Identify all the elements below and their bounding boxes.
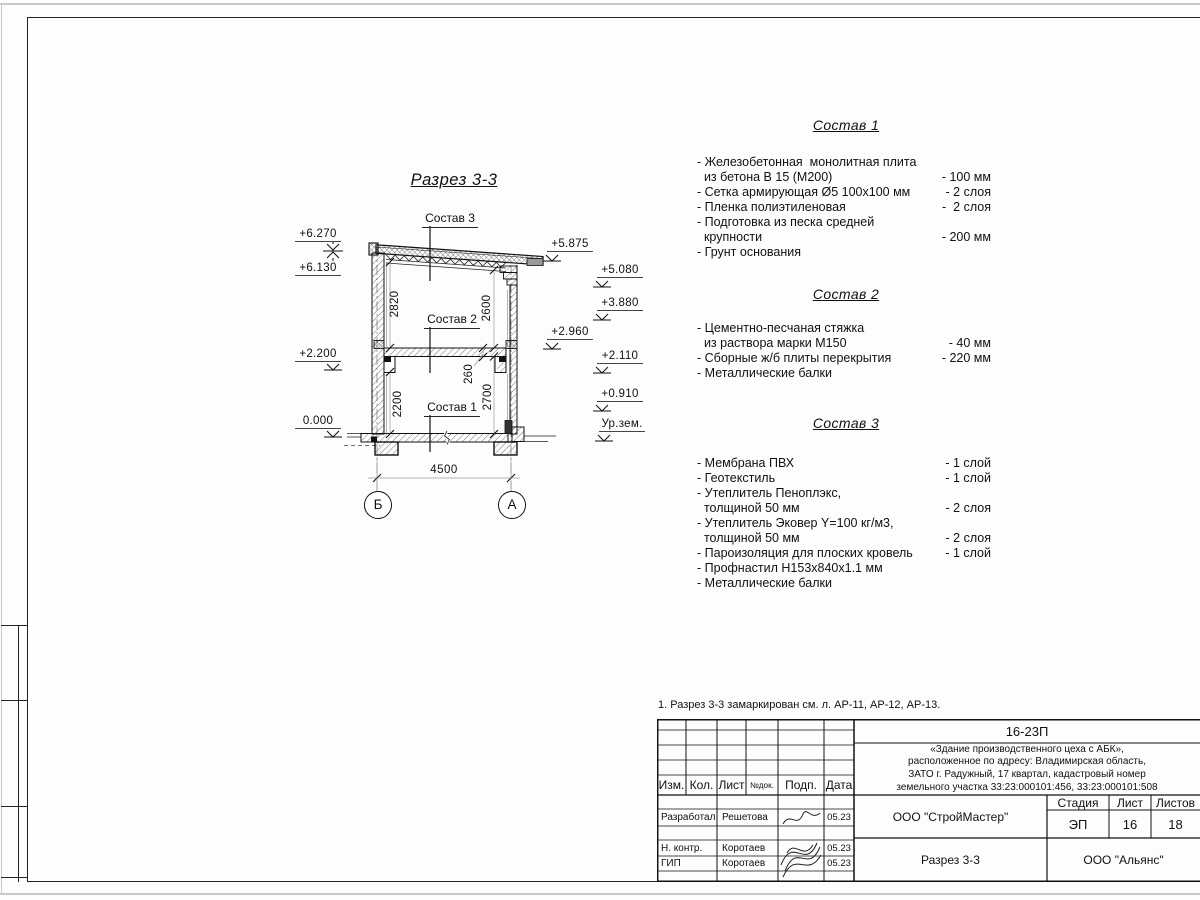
frame-left	[27, 17, 28, 882]
bearing-pad-right	[499, 357, 506, 363]
spec3-rows: - Мембрана ПВХ - 1 слой - Геотекстиль - …	[697, 456, 995, 591]
elevation-0910: +0.910	[597, 388, 643, 402]
sostav2-label: Состав 2	[424, 312, 480, 329]
spec2-title: Состав 2	[697, 286, 995, 302]
spec-row: - Металлические балки	[697, 366, 995, 381]
spec-item-value: - 2 слоя	[946, 531, 995, 546]
spec-item-text: - Мембрана ПВХ	[697, 456, 794, 471]
ground-slab	[361, 434, 508, 443]
grid-bubble-b: Б	[364, 491, 392, 519]
project-description-line: ЗАТО г. Радужный, 17 квартал, кадастровы…	[908, 769, 1146, 782]
col-izm: Изм.	[657, 775, 686, 795]
spec-item-text: - Грунт основания	[697, 245, 801, 260]
elevation-2200: +2.200	[295, 348, 341, 362]
elevation-5875: +5.875	[547, 238, 593, 252]
spec-item-value: - 100 мм	[942, 170, 995, 185]
sheet-edge-top	[0, 3, 1200, 5]
footing-left	[375, 442, 398, 455]
sheet-edge-left	[1, 3, 2, 895]
corbel-step	[504, 273, 518, 280]
project-code: 16-23П	[854, 720, 1200, 742]
col-podp: Подп.	[778, 775, 824, 795]
sheets-total: 18	[1151, 810, 1200, 838]
dim-2200: 2200	[392, 382, 406, 426]
spec-item-value	[991, 561, 995, 576]
spec-row: из бетона В 15 (М200) - 100 мм	[697, 170, 995, 185]
project-description-line: земельного участка 33:23:000101:456, 33:…	[896, 782, 1157, 795]
spec-item-value: - 2 слоя	[946, 501, 995, 516]
spec-row: - Утеплитель Эковер Y=100 кг/м3,	[697, 516, 995, 531]
corbel-step	[507, 279, 517, 285]
spec-row: - Подготовка из песка средней	[697, 215, 995, 230]
spec-item-text: - Утеплитель Эковер Y=100 кг/м3,	[697, 516, 893, 531]
project-description-line: расположенное по адресу: Владимирская об…	[908, 756, 1146, 769]
role-date: 05.23	[824, 856, 854, 871]
spec-item-value: - 1 слой	[945, 471, 995, 486]
stage-label: Стадия	[1047, 795, 1109, 810]
customer-name: ООО "Альянс"	[1047, 838, 1200, 882]
sheet-note: 1. Разрез 3-3 замаркирован см. л. АР-11,…	[658, 699, 940, 711]
dim-2600: 2600	[481, 286, 495, 330]
spec-item-text: - Подготовка из песка средней	[697, 215, 874, 230]
spec-item-value	[991, 516, 995, 531]
col-ndok: №док.	[746, 775, 778, 795]
title-block: 16-23П «Здание производственного цеха с …	[657, 719, 1200, 882]
margin-stamp-line	[1, 625, 27, 626]
dim-2700: 2700	[482, 375, 496, 419]
sheet-label: Лист	[1109, 795, 1151, 810]
org-name: ООО "СтройМастер"	[854, 795, 1047, 838]
spec2-rows: - Цементно-песчаная стяжка из раствора м…	[697, 321, 995, 381]
spec-row: - Мембрана ПВХ - 1 слой	[697, 456, 995, 471]
spec-row: крупности - 200 мм	[697, 230, 995, 245]
spec-item-value: - 220 мм	[942, 351, 995, 366]
spec-item-value: - 1 слой	[945, 546, 995, 561]
spec-row: - Профнастил Н153х840х1.1 мм	[697, 561, 995, 576]
spec-row: - Пленка полиэтиленовая - 2 слоя	[697, 200, 995, 215]
spec-row: - Утеплитель Пеноплэкс,	[697, 486, 995, 501]
spec-item-text: - Цементно-песчаная стяжка	[697, 321, 864, 336]
roof-overhang-tip	[527, 259, 543, 266]
spec-item-text: - Пленка полиэтиленовая	[697, 200, 846, 215]
footing-right	[494, 442, 517, 455]
elevation-2960: +2.960	[547, 326, 593, 340]
spec-item-text: - Пароизоляция для плоских кровель	[697, 546, 913, 561]
slab-wall-junction-left	[374, 341, 384, 349]
elevation-5080: +5.080	[597, 264, 643, 278]
col-kol: Кол.	[686, 775, 717, 795]
section-drawing	[280, 150, 680, 540]
spec-row: - Цементно-песчаная стяжка	[697, 321, 995, 336]
col-data: Дата	[824, 775, 854, 795]
bearing-pad-left	[384, 357, 391, 363]
spec-item-text: - Геотекстиль	[697, 471, 775, 486]
spec-row: - Сетка армирующая Ø5 100х100 мм - 2 сло…	[697, 185, 995, 200]
floor-slab	[384, 348, 506, 357]
spec-item-value	[991, 366, 995, 381]
slab-support-hatch	[497, 363, 506, 373]
drawing-sheet: Разрез 3-3 Состав 3 Состав 2 Состав 1 28…	[0, 0, 1200, 900]
project-description-line: «Здание производственного цеха с АБК»,	[930, 744, 1124, 757]
spec-row: - Сборные ж/б плиты перекрытия - 220 мм	[697, 351, 995, 366]
spec1-title: Состав 1	[697, 117, 995, 133]
col-list: Лист	[717, 775, 746, 795]
elevation-3880: +3.880	[597, 297, 643, 311]
spec3-title: Состав 3	[697, 415, 995, 431]
role-date: 05.23	[824, 809, 854, 826]
spec-item-text: толщиной 50 мм	[697, 531, 800, 546]
spec-row: - Геотекстиль - 1 слой	[697, 471, 995, 486]
spec-item-value	[991, 215, 995, 230]
spec-item-value: - 2 слоя	[942, 200, 995, 215]
role-label: Разработал	[658, 809, 719, 826]
stoop-step	[512, 427, 524, 442]
stage-value: ЭП	[1047, 810, 1109, 838]
spec-item-value: - 200 мм	[942, 230, 995, 245]
spec-item-text: толщиной 50 мм	[697, 501, 800, 516]
elevation-6130: +6.130	[295, 262, 341, 276]
frame-top	[27, 17, 1200, 18]
spec-item-value: - 1 слой	[945, 456, 995, 471]
sostav3-label: Состав 3	[422, 211, 478, 228]
role-name: Коротаев	[719, 840, 780, 856]
spec-row: - Железобетонная монолитная плита	[697, 155, 995, 170]
spec-item-text: - Сборные ж/б плиты перекрытия	[697, 351, 891, 366]
role-label: Н. контр.	[658, 840, 719, 856]
grid-bubble-a: А	[498, 491, 526, 519]
spec-item-value	[991, 245, 995, 260]
sheets-label: Листов	[1151, 795, 1200, 810]
signature-korotaev	[781, 843, 821, 877]
spec-item-text: - Утеплитель Пеноплэкс,	[697, 486, 841, 501]
spec1-rows: - Железобетонная монолитная плита из бет…	[697, 155, 995, 260]
spec-row: - Грунт основания	[697, 245, 995, 260]
role-name: Решетова	[719, 809, 780, 826]
spec-row: - Пароизоляция для плоских кровель - 1 с…	[697, 546, 995, 561]
spec-item-text: крупности	[697, 230, 762, 245]
spec-row: толщиной 50 мм - 2 слоя	[697, 501, 995, 516]
margin-stamp-line	[1, 806, 27, 807]
elevation-ground: Ур.зем.	[599, 418, 645, 432]
margin-stamp-line	[1, 700, 27, 701]
dim-2820: 2820	[389, 282, 403, 326]
slab-wall-junction-right	[506, 341, 517, 349]
role-label: ГИП	[658, 856, 719, 871]
ground-lines-right	[524, 436, 556, 442]
elevation-0000: 0.000	[295, 415, 341, 429]
spec-item-value	[991, 486, 995, 501]
roof-slab	[376, 245, 543, 265]
spec-item-text: - Металлические балки	[697, 576, 832, 591]
spec-item-value	[991, 321, 995, 336]
spec-item-text: - Железобетонная монолитная плита	[697, 155, 916, 170]
ground-slab-extension	[347, 434, 361, 438]
spec-row: - Металлические балки	[697, 576, 995, 591]
corbel-step	[500, 266, 517, 273]
sostav1-label: Состав 1	[424, 400, 480, 417]
dim-4500: 4500	[415, 464, 473, 476]
sheet-number: 16	[1109, 810, 1151, 838]
signature-reshetova	[783, 812, 820, 824]
spec-item-value: - 40 мм	[949, 336, 995, 351]
role-date: 05.23	[824, 840, 854, 856]
role-name: Коротаев	[719, 856, 780, 871]
margin-stamp-line	[18, 625, 19, 882]
spec-row: толщиной 50 мм - 2 слоя	[697, 531, 995, 546]
spec-row: из раствора марки М150 - 40 мм	[697, 336, 995, 351]
wall-right	[510, 285, 517, 434]
project-description: «Здание производственного цеха с АБК», р…	[854, 743, 1200, 795]
stoop-block	[505, 421, 512, 434]
elevation-2110: +2.110	[597, 350, 643, 364]
section-title: Разрез 3-3	[394, 171, 514, 190]
spec-item-value	[991, 155, 995, 170]
document-title: Разрез 3-3	[854, 838, 1047, 882]
spec-item-text: - Металлические балки	[697, 366, 832, 381]
spec-item-text: из бетона В 15 (М200)	[697, 170, 832, 185]
spec-item-text: - Сетка армирующая Ø5 100х100 мм	[697, 185, 910, 200]
margin-stamp-line	[1, 877, 27, 878]
spec-item-text: из раствора марки М150	[697, 336, 847, 351]
sheet-edge-bottom	[0, 893, 1200, 895]
spec-item-value	[991, 576, 995, 591]
elevation-6270: +6.270	[295, 228, 341, 242]
dim-260: 260	[463, 352, 477, 396]
spec-item-text: - Профнастил Н153х840х1.1 мм	[697, 561, 883, 576]
spec-item-value: - 2 слоя	[946, 185, 995, 200]
